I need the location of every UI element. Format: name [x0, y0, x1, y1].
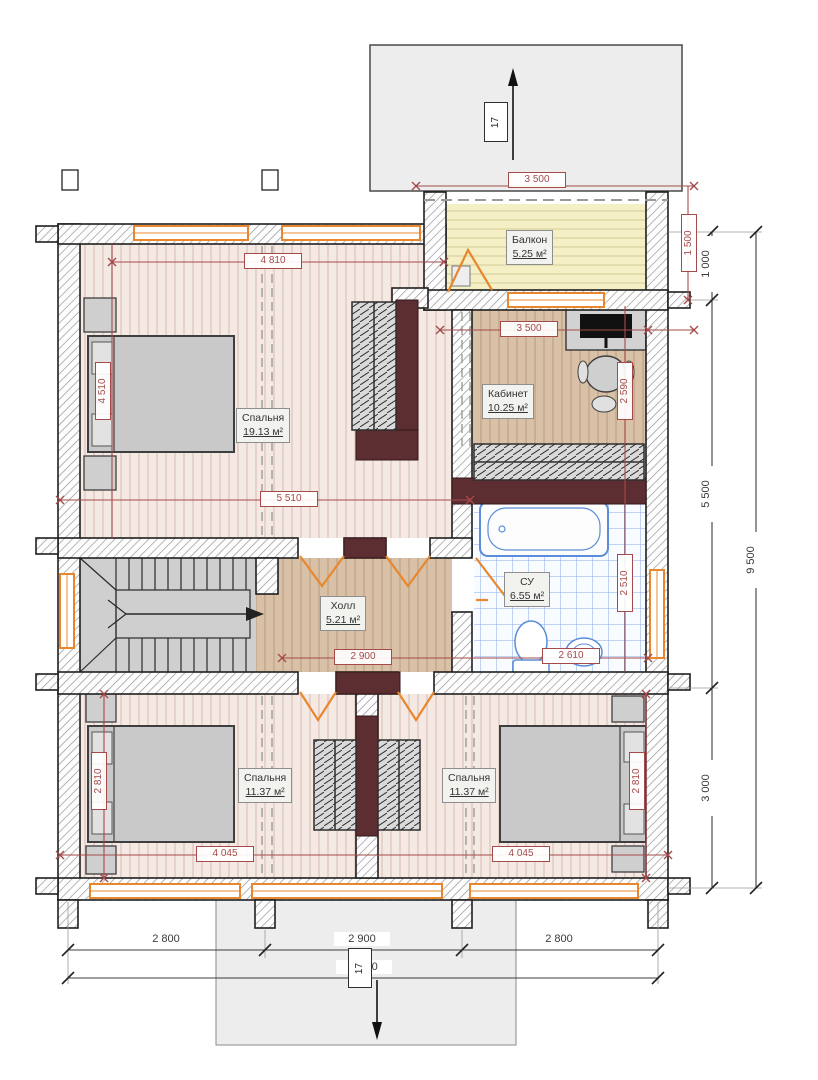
- roof-post: [262, 170, 278, 190]
- dim-balcony-depth: 1 500: [681, 214, 697, 272]
- section-marker-top: 17: [484, 102, 508, 142]
- wall-hall-top: [58, 538, 298, 558]
- dim-bathroom-width: 2 610: [542, 648, 600, 664]
- monitor: [580, 314, 632, 338]
- nightstand: [84, 456, 116, 490]
- wall-bathroom-top: [452, 478, 646, 504]
- dim-balcony-width: 3 500: [508, 172, 566, 188]
- dim-bedroom-top-height: 4 510: [95, 362, 111, 420]
- wall-stair-partition: [256, 558, 278, 594]
- dim-bottom-3: 2 800: [531, 932, 587, 946]
- dim-bedroom-top-width: 4 810: [244, 253, 302, 269]
- dim-right-3: 3 000: [699, 760, 713, 816]
- wall-left: [58, 224, 80, 900]
- dim-bottom-1: 2 800: [138, 932, 194, 946]
- dim-hall-width: 2 900: [334, 649, 392, 665]
- dim-bedroom-left-height: 2 810: [91, 752, 107, 810]
- dim-bedroom-top-inner-width: 5 510: [260, 491, 318, 507]
- nightstand: [612, 696, 644, 722]
- dim-bottom-2: 2 900: [334, 932, 390, 946]
- dim-bedroom-right-height: 2 810: [629, 752, 645, 810]
- dim-right-total: 9 500: [744, 532, 758, 588]
- room-label-bathroom: СУ 6.55 м²: [504, 572, 550, 607]
- room-label-office: Кабинет 10.25 м²: [482, 384, 534, 419]
- dim-office-width: 3 500: [500, 321, 558, 337]
- room-label-balcony: Балкон 5.25 м²: [506, 230, 553, 265]
- dim-bedroom-left-width: 4 045: [196, 846, 254, 862]
- room-label-hall: Холл 5.21 м²: [320, 596, 366, 631]
- nightstand: [84, 298, 116, 332]
- stool: [592, 396, 616, 412]
- section-marker-bottom: 17: [348, 948, 372, 988]
- room-label-bedroom-right: Спальня 11.37 м²: [442, 768, 496, 803]
- floor-plan-canvas: Балкон 5.25 м² Спальня 19.13 м² Кабинет …: [0, 0, 818, 1080]
- floor-plan-drawing: [0, 0, 818, 1080]
- dim-bedroom-right-width: 4 045: [492, 846, 550, 862]
- dim-bathroom-height: 2 510: [617, 554, 633, 612]
- dim-right-2: 5 500: [699, 466, 713, 522]
- nightstand: [86, 846, 116, 874]
- dim-office-height: 2 590: [617, 362, 633, 420]
- dim-right-1: 1 000: [699, 236, 713, 292]
- nightstand: [612, 846, 644, 872]
- wall-hall-bottom: [58, 672, 298, 694]
- roof-post: [62, 170, 78, 190]
- room-label-bedroom-top: Спальня 19.13 м²: [236, 408, 290, 443]
- room-label-bedroom-left: Спальня 11.37 м²: [238, 768, 292, 803]
